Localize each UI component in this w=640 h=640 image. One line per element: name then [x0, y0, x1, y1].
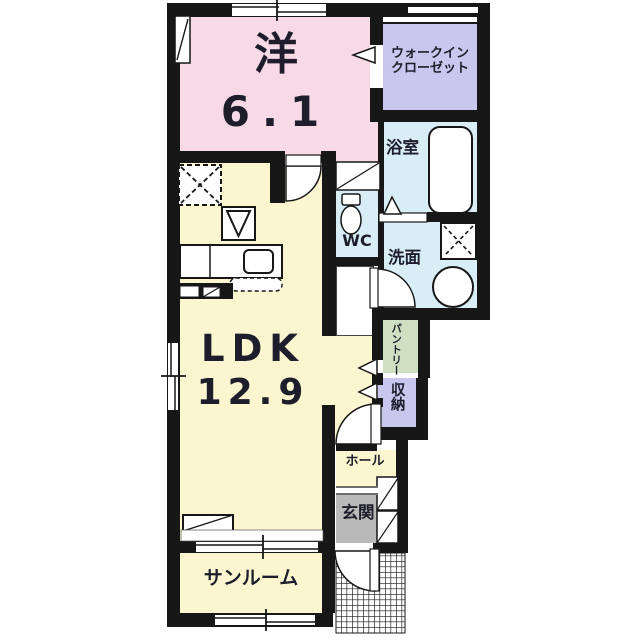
- wall: [427, 212, 477, 222]
- wall: [270, 151, 285, 203]
- entrance-porch-hatch: [336, 553, 405, 633]
- wall: [372, 308, 490, 320]
- sunroom-label: サンルーム: [180, 568, 322, 590]
- wall: [180, 151, 270, 163]
- hall-nook: [336, 266, 374, 336]
- wall: [167, 3, 180, 627]
- washroom-label: 洗面: [388, 249, 421, 268]
- wall: [372, 398, 383, 407]
- wall: [373, 543, 398, 555]
- entrance-label: 玄関: [336, 504, 380, 523]
- pantry-label: パントリー: [390, 323, 402, 373]
- wall: [378, 122, 384, 312]
- wall: [370, 110, 477, 122]
- wall: [372, 427, 428, 440]
- wall: [416, 378, 428, 427]
- storage-label: 収納: [388, 382, 405, 428]
- wall: [167, 541, 335, 553]
- wall: [372, 320, 383, 360]
- wc-label: WC: [336, 232, 378, 250]
- wall: [336, 443, 377, 451]
- wc-shelf-icon: [336, 162, 380, 190]
- wall: [418, 320, 430, 378]
- wall: [477, 3, 490, 320]
- bathroom-label: 浴室: [386, 139, 419, 158]
- floor-plan: 洋 6.1 ウォークイン クローゼット 浴室 WC 洗面 パントリー 収納 LD…: [0, 0, 640, 640]
- wall: [336, 257, 379, 266]
- walkin-closet-line1: ウォークイン: [383, 47, 477, 62]
- wall: [372, 373, 383, 385]
- wall: [322, 405, 335, 613]
- walkin-closet-label: ウォークイン クローゼット: [383, 47, 477, 77]
- wall: [167, 613, 333, 627]
- room-bathroom: [384, 122, 477, 213]
- entrance-door-swing-icon: [335, 549, 379, 591]
- hall-label: ホール: [336, 455, 394, 470]
- wall: [322, 151, 336, 336]
- ldk-size: 12.9: [180, 372, 326, 413]
- walkin-closet-line2: クローゼット: [383, 62, 477, 77]
- western-room-label: 洋: [180, 30, 372, 81]
- western-room-size: 6.1: [180, 88, 372, 136]
- ldk-label: LDK: [180, 328, 326, 371]
- wall: [167, 3, 490, 17]
- wall: [396, 440, 408, 553]
